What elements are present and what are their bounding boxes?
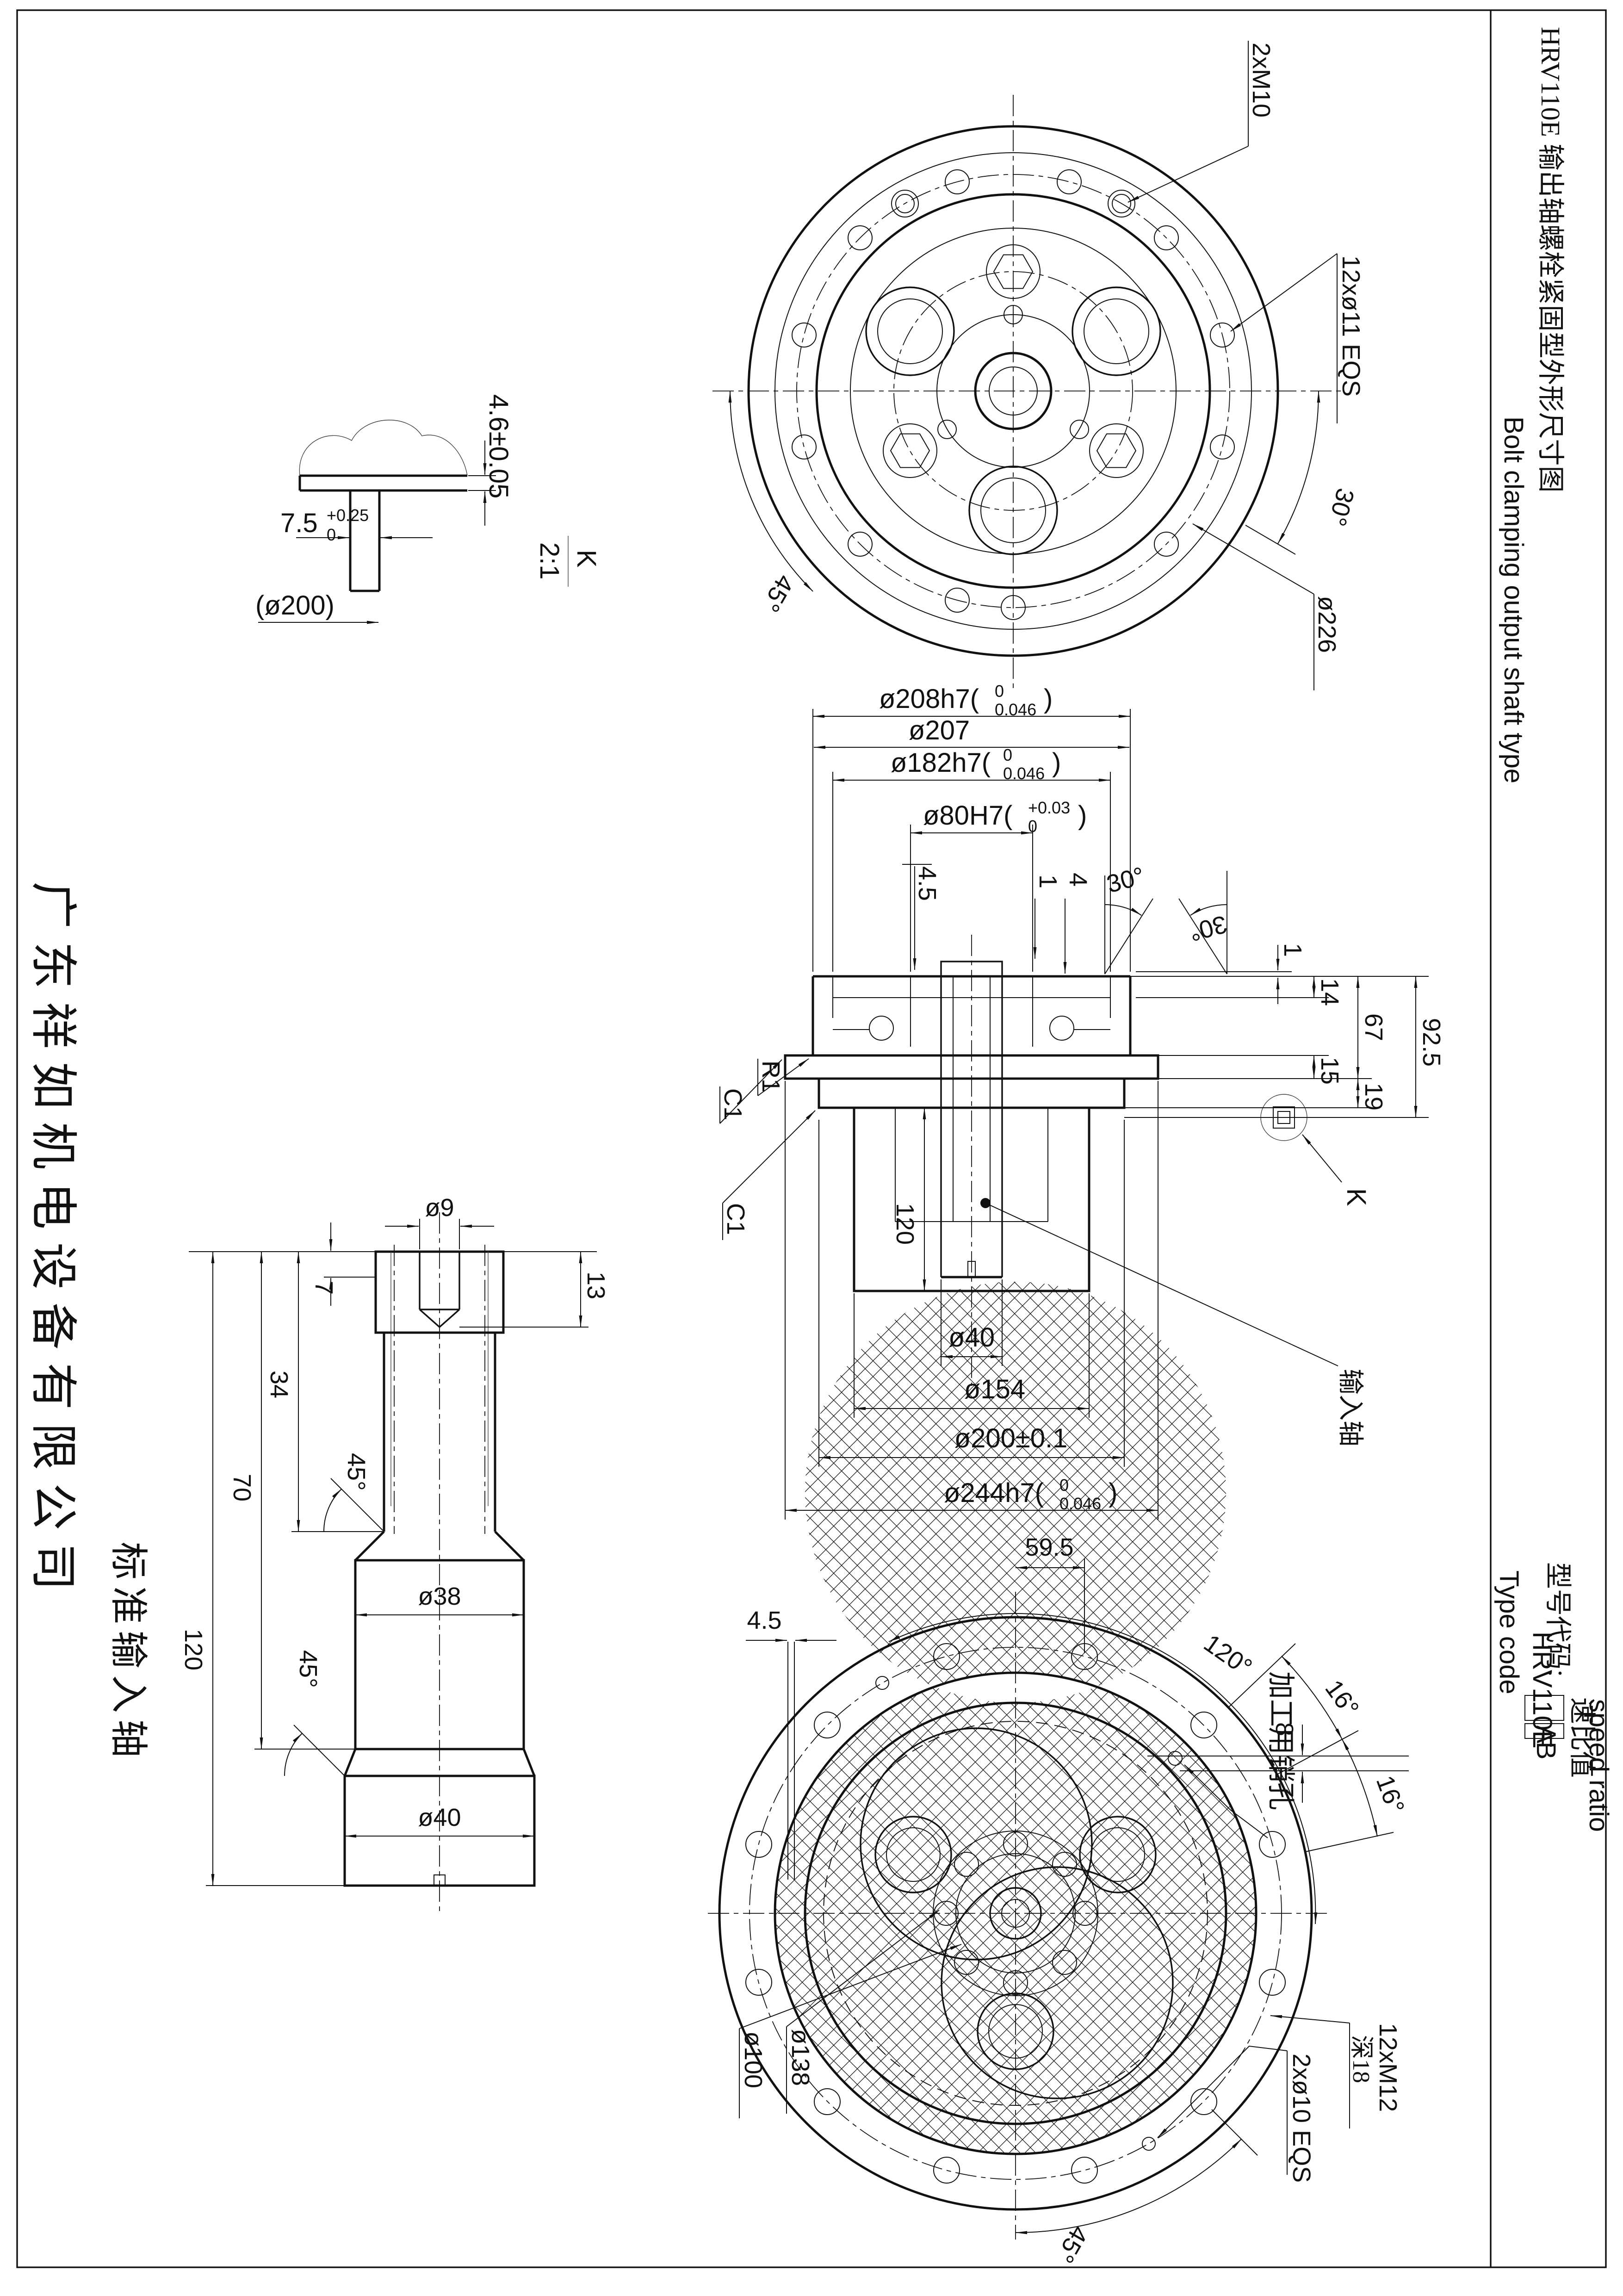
dim-d40-shaft: ø40 xyxy=(418,1804,461,1831)
company-name: 广东祥如机电设备有限公司 xyxy=(26,881,79,1603)
label-2xM10: 2xM10 xyxy=(1247,43,1275,118)
dim-d9: ø9 xyxy=(425,1194,454,1222)
top-view: 2xM10 12xø11 EQS 30° ø226 45° xyxy=(712,41,1365,690)
dim-45deg-shaft-lower: 45° xyxy=(294,1650,322,1688)
dim-45deg-top-view: 45° xyxy=(756,570,799,617)
title-block: HRV110E 输出轴螺栓紧固型外形尺寸图 Bolt clamping outp… xyxy=(1494,27,1614,1832)
leader-d226 xyxy=(1193,524,1314,594)
option-a: A xyxy=(1531,1725,1561,1744)
dim-d80-tol-dn: 0 xyxy=(1028,817,1037,836)
dim-d182-tol-up: 0 xyxy=(1003,745,1012,764)
dim-13: 13 xyxy=(582,1272,610,1299)
drawing-sheet: HRV110E 输出轴螺栓紧固型外形尺寸图 Bolt clamping outp… xyxy=(0,0,1623,2296)
dim-7.5: 7.5 xyxy=(280,508,318,538)
dim-d208-tol-dn: 0.046 xyxy=(995,700,1036,719)
dim-45deg-arc xyxy=(730,391,813,591)
dim-45deg-shaft-upper: 45° xyxy=(342,1453,370,1491)
dim-d200-ref: (ø200) xyxy=(255,590,335,621)
dim-59.5: 59.5 xyxy=(1025,1533,1073,1561)
dim-d208-close: ) xyxy=(1044,684,1053,714)
dim-7.5-tol-dn: 0 xyxy=(327,525,336,544)
dim-4.6: 4.6±0.05 xyxy=(483,394,514,498)
dim-16deg-lower: 16° xyxy=(1371,1772,1410,1817)
dim-d207: ø207 xyxy=(909,715,970,745)
dim-120-shaft: 120 xyxy=(180,1629,207,1670)
dim-14: 14 xyxy=(1316,978,1344,1006)
label-12xd11: 12xø11 EQS xyxy=(1337,255,1365,397)
input-shaft-view: ø9 7 13 34 70 120 45° 45° ø38 ø40 xyxy=(180,1194,610,1911)
drawing-page: { "titleblock": { "title": "HRV110E 输出轴螺… xyxy=(0,0,1623,2296)
dim-d80: ø80H7( xyxy=(923,800,1012,831)
dim-d80-tol-up: +0.03 xyxy=(1028,798,1070,817)
dim-120deg: 120° xyxy=(1199,1629,1257,1682)
dim-19: 19 xyxy=(1360,1083,1388,1111)
dim-92.5: 92.5 xyxy=(1418,1018,1445,1067)
break-line xyxy=(299,420,467,476)
dim-30deg: 30° xyxy=(1323,485,1359,529)
dim-70: 70 xyxy=(228,1474,256,1502)
label-2xd10: 2xø10 EQS xyxy=(1288,2054,1315,2183)
dim-120-section: 120 xyxy=(891,1203,919,1245)
dim-7.5-tol-up: +0.25 xyxy=(327,506,369,525)
label-12xM12: 12xM12 xyxy=(1374,2023,1402,2112)
dim-45deg-bottom: 45° xyxy=(1051,2221,1094,2268)
seal-hatch-ring xyxy=(775,1282,1256,2154)
dim-d182: ø182h7( xyxy=(891,748,991,778)
label-R1: R1 xyxy=(757,1061,785,1092)
dim-7: 7 xyxy=(310,1281,338,1295)
option-b: B xyxy=(1531,1742,1561,1760)
dim-4-boss: 4 xyxy=(1064,873,1092,887)
dim-67: 67 xyxy=(1360,1013,1388,1041)
label-C1-upper: C1 xyxy=(719,1088,747,1120)
standard-input-shaft-caption: 标准输入轴 xyxy=(107,1542,149,1764)
type-code-label-en: Type code xyxy=(1494,1570,1524,1694)
label-d138: ø138 xyxy=(787,2029,814,2086)
dim-d182-close: ) xyxy=(1052,748,1061,778)
dim-d208: ø208h7( xyxy=(879,684,979,714)
label-d226: ø226 xyxy=(1313,596,1341,653)
label-C1-lower: C1 xyxy=(722,1203,750,1235)
dim-d182-tol-dn: 0.046 xyxy=(1003,764,1045,783)
dim-1-step: 1 xyxy=(1279,943,1307,957)
leader-12xM12 xyxy=(1270,2016,1350,2023)
pin-hole-1 xyxy=(1142,2137,1155,2150)
dim-1-boss: 1 xyxy=(1034,875,1062,888)
bottom-view: 59.5 4.5 120° 16° 16° 8 加工用销孔 12xM12 深18… xyxy=(708,1282,1410,2268)
dim-15: 15 xyxy=(1316,1057,1344,1085)
detail-k-scale: 2:1 xyxy=(534,542,564,580)
dim-30deg-arc xyxy=(1278,391,1319,544)
detail-k-view: 4.6±0.05 7.5 +0.25 0 (ø200) K 2:1 xyxy=(255,394,601,622)
dim-4.5-section: 4.5 xyxy=(913,866,941,901)
dim-16deg-upper: 16° xyxy=(1319,1675,1364,1722)
dim-d38: ø38 xyxy=(418,1582,461,1610)
label-K-arrow: K xyxy=(1341,1188,1371,1206)
label-machining-pin-hole: 加工用销孔 xyxy=(1265,1671,1296,1810)
dim-34: 34 xyxy=(265,1371,293,1398)
drawing-subtitle: Bolt clamping output shaft type xyxy=(1499,416,1529,783)
detail-k-letter: K xyxy=(571,550,601,568)
speed-ratio-label-en: speed ratio xyxy=(1584,1699,1614,1832)
drawing-title: HRV110E 输出轴螺栓紧固型外形尺寸图 xyxy=(1536,27,1566,493)
dim-30deg-right: 30° xyxy=(1186,910,1230,946)
label-input-shaft: 输入轴 xyxy=(1336,1369,1364,1446)
dim-d80-close: ) xyxy=(1078,800,1087,831)
dim-4.5-bottom: 4.5 xyxy=(747,1607,781,1634)
pin-hole-2 xyxy=(876,1676,889,1689)
dim-d208-tol-up: 0 xyxy=(995,682,1004,701)
label-m12-depth: 深18 xyxy=(1348,2035,1374,2083)
label-d100: ø100 xyxy=(739,2031,767,2088)
